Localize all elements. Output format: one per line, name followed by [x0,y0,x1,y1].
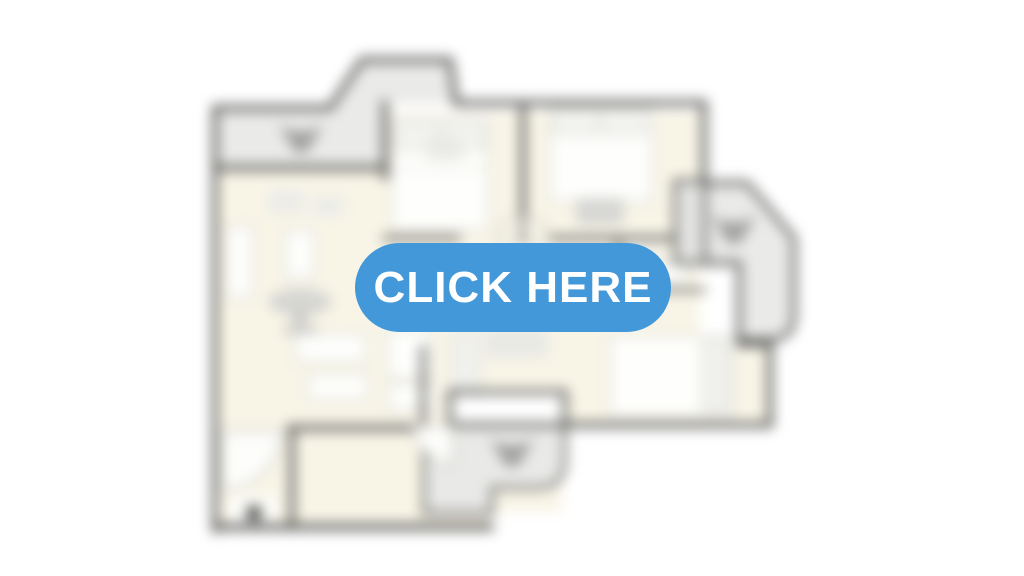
click-here-button[interactable]: CLICK HERE [355,243,671,332]
page: CLICK HERE [0,0,1024,576]
floorplan-shaft [675,181,705,263]
floorplan-utility-room [450,392,565,425]
